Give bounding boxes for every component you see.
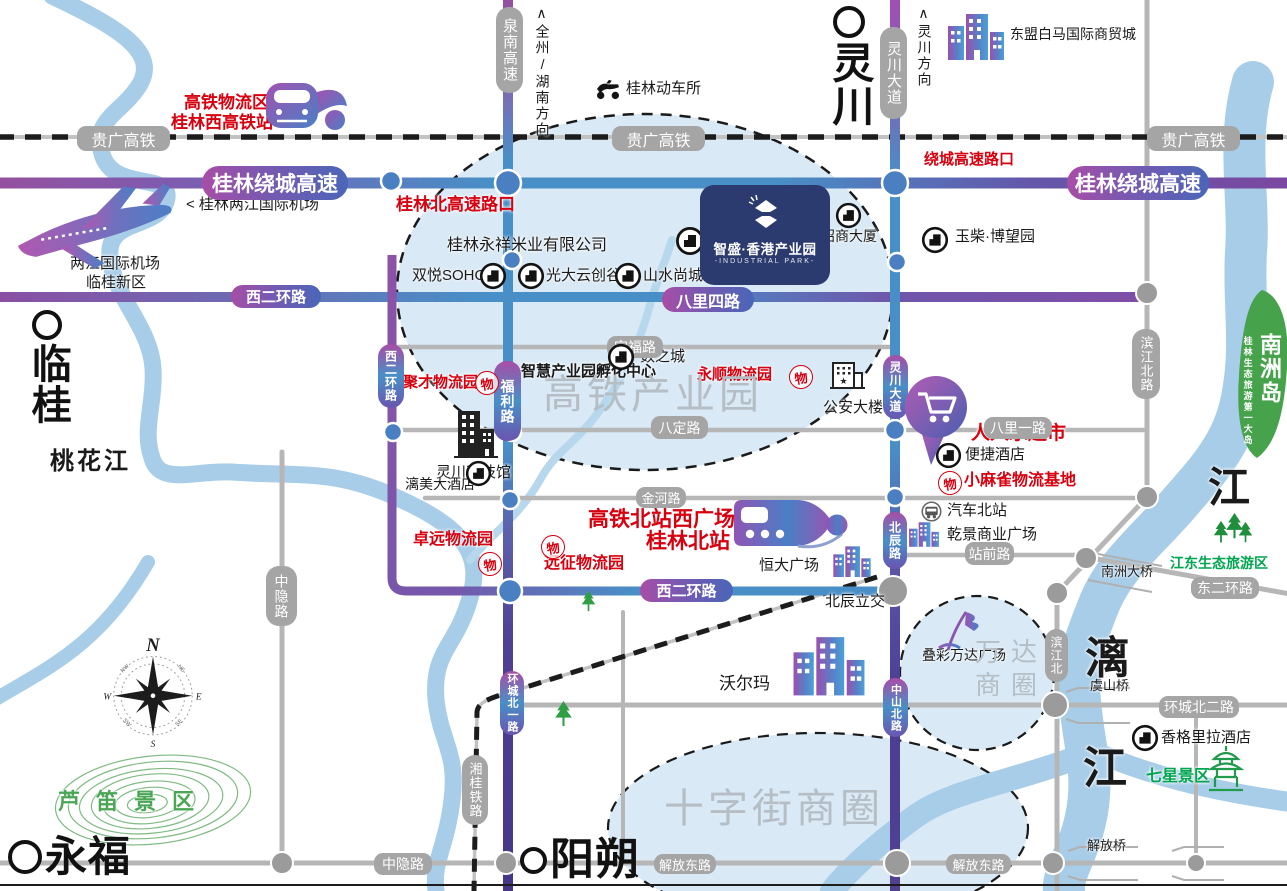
map-bottom-border [0,884,1287,886]
huancheng-north-2nd-road: 环城北二路 [1159,696,1239,718]
binjiang-north-road: 滨江北路 [1132,329,1160,399]
hengda-building-icon [832,538,872,584]
svg-text:N: N [145,636,161,656]
jiangdong-eco-tourism: 江东生态旅游区 [1170,555,1268,572]
yongfu-city: 永福 [8,836,131,879]
yongfu-city-circle [8,840,42,874]
quanzhou-hunan-direction: ∧全州/湖南方向 [534,6,551,138]
jiefang-bridge: 解放桥 [1087,838,1126,853]
nanzhou-island: 南洲岛 [1256,333,1282,405]
jiefang-east-road-1: 解放东路 [654,854,716,874]
logo-title: 智盛·香港产业园 [700,238,830,258]
emu-depot-icon [594,78,622,100]
xi-2nd-ring-road-2: 西二环路 [640,579,733,602]
lingchuan-city: 灵川 [828,6,871,127]
svg-text:SE: SE [175,718,185,728]
xiaomaque-logistics-base: 小麻雀物流基地 [964,472,1076,491]
li-river-char-2: 江 [1083,743,1127,795]
airplane-icon [12,186,180,270]
soho-icon [479,262,507,290]
xi-2nd-ring-road-1: 西二环路 [231,285,321,308]
ring-expressway-exit: 绕城高速路口 [924,151,1014,169]
yuchai-bowang-park: 玉柴·博望园 [955,228,1035,246]
west-hsr-train-icon [263,80,351,134]
shangri-la-icon [1131,724,1159,752]
location-map: 高铁物流区桂林西高铁站桂林北高速路口绕城高速路口永顺物流园聚才物流园人人乐超市小… [0,0,1287,891]
yangshuo-city-circle [520,847,547,874]
huancheng-north-1st-road: 环城北一路 [500,671,524,735]
taohua-river: 桃花江 [50,448,131,476]
lingchuan-city-label: 灵川 [828,41,871,127]
xianggui-railway: 湘桂铁路 [462,755,488,825]
shizijie-business-circle: 十字街商圈 [664,786,884,833]
zhongyin-road-h: 中隐路 [374,853,432,875]
guiguang-hsr-label-3: 贵广高铁 [1147,126,1240,151]
reed-flute-scenic-area: 芦笛景区 [58,789,210,815]
beichen-interchange: 北辰立交 [825,593,885,611]
lingui-city-circle [32,310,62,340]
public-security-building: 公安大楼 [823,399,883,417]
svg-text:SW: SW [121,718,132,729]
yangshuo-city-label: 阳朔 [550,838,640,883]
lingui-new-district: 临桂新区 [86,274,146,292]
yangshuo-city: 阳朔 [520,838,640,883]
guangda-cloud-valley: 光大云创谷 [546,267,621,285]
nanzhou-island-subtitle: 桂林生态旅游第一大岛 [1242,336,1253,446]
seven-star-park: 七星景区 [1146,768,1210,787]
shuangyue-soho: 双悦SOHO [412,267,486,285]
binjiang-north: 滨江北 [1045,629,1068,682]
jinhe-road: 金河路 [636,487,686,508]
nanzhou-bridge: 南洲大桥 [1101,564,1153,579]
yongxiang-rice-company: 桂林永祥米业有限公司 [447,237,607,256]
zhanqian-road: 站前路 [965,542,1014,565]
guilin-north-expressway-exit: 桂林北高速路口 [396,195,515,215]
asean-baima-trade-city: 东盟白马国际商贸城 [1010,26,1136,43]
zhaoshang-building-icon [835,202,862,229]
zhongyin-road-v: 中隐路 [266,566,297,626]
logo-s-icon [742,191,788,235]
bading-road: 八定路 [651,416,708,439]
lingchuan-city-circle [833,6,865,38]
xi-2nd-ring-road-v: 西二环路 [378,344,404,408]
guilin-west-hsr-station: 桂林西高铁站 [171,113,273,133]
bus-station-icon [921,501,942,522]
yongfu-city-label: 永福 [45,836,131,879]
trade-city-building-icon [946,10,1006,62]
zhisheng-hongkong-industrial-park-logo: 智盛·香港产业园 -INDUSTRIAL PARK- [700,185,830,285]
guiguang-hsr-label-2: 贵广高铁 [612,126,705,151]
public-security-icon: ★ [829,360,866,394]
svg-text:S: S [151,740,156,748]
dong-2nd-ring-road: 东二环路 [1191,577,1259,599]
yuchai-icon [921,226,949,254]
lingui-city-label: 临桂 [27,343,68,425]
walmart-building-icon [791,630,867,700]
svg-text:★: ★ [839,376,847,386]
guiguang-hsr-label-1: 贵广高铁 [77,126,170,151]
eco-forest-icon [1212,512,1254,546]
svg-text:E: E [195,692,202,702]
guilin-north-station: 桂林北站 [646,530,730,555]
qianjing-building-icon [908,520,940,548]
lingchuan-direction: ∧灵川方向 [916,6,933,88]
guilin-emu-depot: 桂林动车所 [626,80,701,98]
li-river-char-3: 江 [1208,463,1250,513]
tree-icon-1 [580,590,597,612]
wanda-flag-icon [936,608,988,652]
guilin-ring-expressway-1: 桂林绕城高速 [202,166,348,200]
guangda-icon [517,262,545,290]
shuzhicheng-icon [607,343,635,371]
quannan-expressway: 泉南高速 [496,7,523,93]
hsr-logistics-zone: 高铁物流区 [184,93,269,113]
svg-text:W: W [103,692,112,702]
bali-4th-road: 八里四路 [662,287,754,312]
hengda-plaza: 恒大广场 [759,557,819,575]
zhuoyuan-logistics-park: 卓远物流园 [413,531,493,550]
beichen-road: 北辰路 [883,512,907,569]
li-river-char-1: 漓 [1085,633,1129,685]
lingchuan-avenue-1: 灵川大道 [880,27,907,119]
hsr-industrial-park-zone: 高铁产业园 [543,372,763,419]
guilin-ring-expressway-2: 桂林绕城高速 [1067,166,1209,200]
compass-rose: NEWSNENWSESW [100,636,206,748]
lingui-city: 临桂 [27,310,68,425]
tree-icon-2 [553,700,574,727]
north-bus-station: 汽车北站 [947,502,1007,520]
north-station-train-icon [728,492,848,556]
limei-hotel-icon [465,460,492,487]
jiefang-east-road-2: 解放东路 [946,854,1011,874]
bali-1st-road: 八里一路 [984,417,1052,439]
jucai-logistics-park: 聚才物流园 [403,374,478,392]
logo-subtitle: -INDUSTRIAL PARK- [700,258,830,265]
shanshui-icon [614,262,642,290]
walmart: 沃尔玛 [719,674,770,694]
seven-star-pagoda-icon [1207,745,1245,793]
bianjie-hotel: 便捷酒店 [965,446,1025,464]
zhongshan-north-road: 中山北路 [883,678,908,737]
science-museum-icon [450,405,502,462]
shanshui-shangcheng: 山水尚城 [643,267,703,285]
